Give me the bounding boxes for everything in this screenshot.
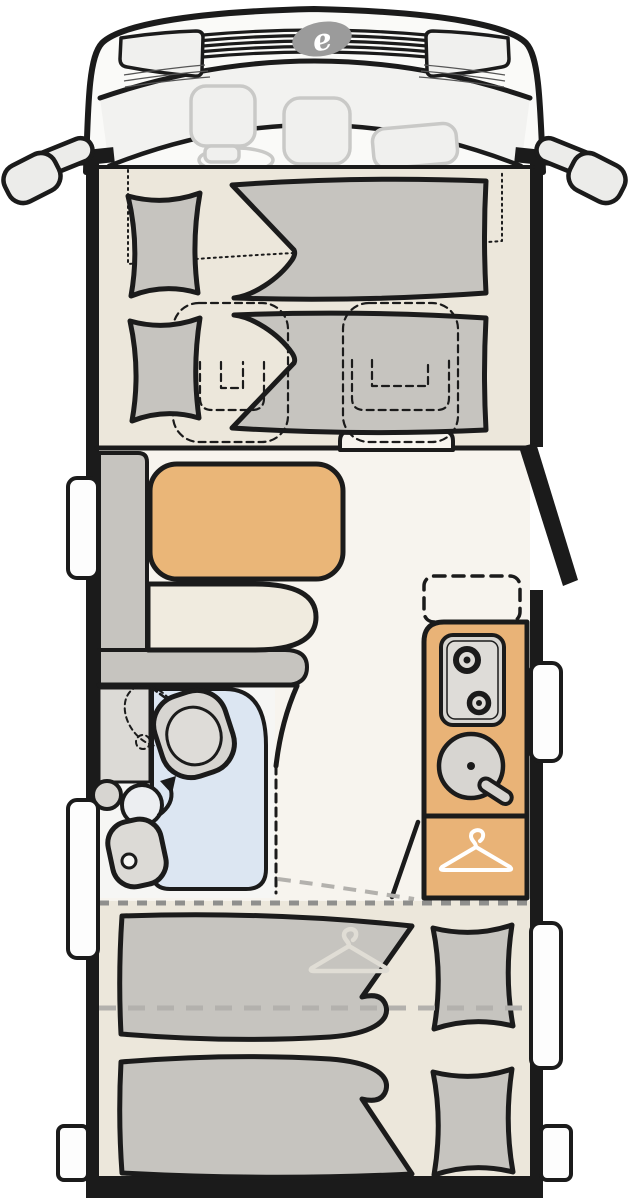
- front-bed-pillow-top: [128, 193, 200, 296]
- rear-corner-trim-right: [541, 1126, 571, 1180]
- motorhome-floorplan: e: [0, 0, 629, 1200]
- window-right-bedroom: [531, 923, 561, 1068]
- driver-seat-cushion: [205, 146, 239, 162]
- sink-drain: [467, 762, 475, 770]
- passenger-seat-right: [371, 122, 458, 169]
- front-bed-pillow-bottom: [130, 318, 200, 421]
- rear-bed-duvet-top: [120, 915, 412, 1040]
- passenger-seat-middle: [284, 98, 350, 164]
- wardrobe-cabinet: [424, 816, 527, 898]
- rear-corner-trim-left: [58, 1126, 88, 1180]
- wall-right-front: [530, 162, 543, 447]
- worktop-extension-outline: [424, 576, 520, 622]
- bench-backrest-bottom: [99, 650, 307, 685]
- dinette-table: [150, 464, 343, 579]
- burner-small-center: [476, 700, 482, 706]
- bench-seat: [148, 584, 316, 650]
- window-left-bedroom: [68, 800, 98, 958]
- bench-backrest-side: [99, 453, 147, 650]
- rear-bed-pillow-bottom: [433, 1069, 513, 1175]
- driver-seat: [191, 86, 255, 146]
- toilet-flush: [122, 854, 136, 868]
- floorplan-page: e: [0, 0, 629, 1200]
- window-left-dinette: [68, 478, 98, 578]
- bathroom: [93, 675, 297, 898]
- burner-large-center: [464, 657, 471, 664]
- window-right-kitchen: [531, 663, 561, 761]
- rear-bed-pillow-top: [433, 925, 513, 1029]
- rear-bed-duvet-bottom: [120, 1057, 412, 1178]
- kitchen: [424, 576, 527, 816]
